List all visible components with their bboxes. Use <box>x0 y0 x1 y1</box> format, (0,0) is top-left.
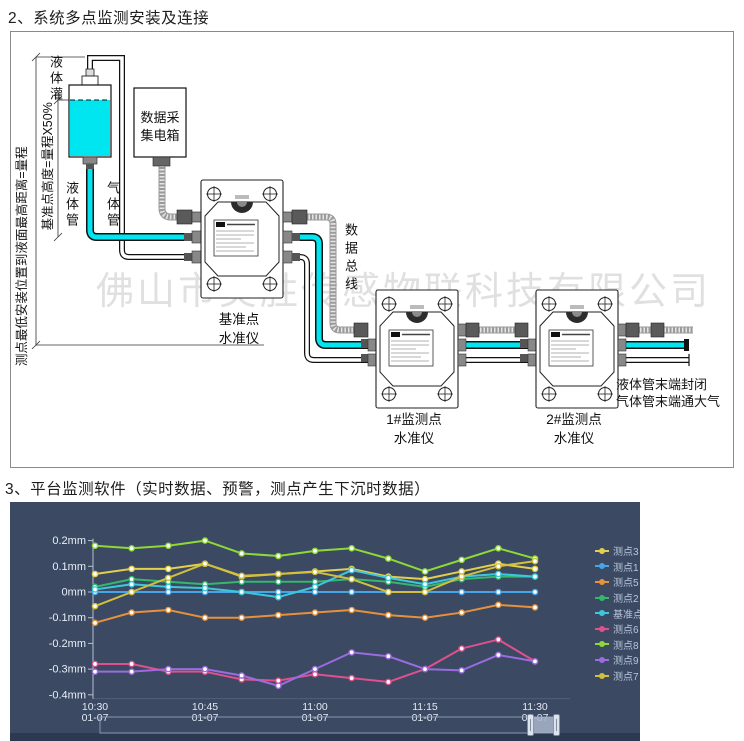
slider-selected-range[interactable] <box>530 717 556 733</box>
legend-label: 测点1 <box>613 559 639 574</box>
dim-base-height-label: 基准点高度=量程X50% <box>42 66 55 266</box>
legend-item-测点2[interactable]: 测点2 <box>595 590 640 606</box>
legend-item-测点9[interactable]: 测点9 <box>595 652 640 668</box>
data-point <box>312 569 317 574</box>
legend-label: 测点6 <box>613 621 639 636</box>
data-point <box>202 615 207 620</box>
legend-label: 测点9 <box>613 652 639 667</box>
section-title-install: 2、系统多点监测安装及连接 <box>8 6 209 28</box>
data-point <box>496 589 501 594</box>
legend-item-测点1[interactable]: 测点1 <box>595 559 640 575</box>
data-point <box>239 673 244 678</box>
y-tick-label: 0mm <box>62 587 86 599</box>
data-point <box>386 613 391 618</box>
series-测点1 <box>92 589 537 594</box>
y-tick-label: -0.1mm <box>49 612 86 624</box>
data-point <box>496 571 501 576</box>
data-point <box>349 675 354 680</box>
data-point <box>239 551 244 556</box>
data-point <box>459 646 464 651</box>
data-point <box>459 557 464 562</box>
data-point <box>459 589 464 594</box>
x-axis: 10:3001-0710:4501-0711:0001-0711:1501-07… <box>82 699 570 724</box>
data-point <box>202 538 207 543</box>
x-tick-date: 01-07 <box>302 712 329 724</box>
legend-label: 测点5 <box>613 574 639 589</box>
collector-box-label-1: 数据采 <box>140 110 179 125</box>
station2-label-1: 2#监测点 <box>546 412 602 427</box>
data-point <box>349 568 354 573</box>
legend-label: 测点7 <box>613 668 639 683</box>
legend-marker-icon <box>595 581 609 583</box>
data-point <box>386 575 391 580</box>
legend-marker-icon <box>595 550 609 552</box>
data-point <box>386 654 391 659</box>
data-point <box>532 589 537 594</box>
data-point <box>276 553 281 558</box>
data-point <box>496 546 501 551</box>
data-point <box>92 543 97 548</box>
data-point <box>129 577 134 582</box>
data-point <box>276 579 281 584</box>
liquid-tank <box>69 69 111 169</box>
data-point <box>239 615 244 620</box>
data-point <box>92 661 97 666</box>
data-point <box>496 637 501 642</box>
legend-marker-icon <box>595 675 609 677</box>
data-point <box>459 610 464 615</box>
series-测点5 <box>92 602 537 625</box>
y-tick-label: 0.2mm <box>52 535 86 547</box>
series-测点9 <box>92 650 537 689</box>
legend-marker-icon <box>595 597 609 599</box>
data-point <box>312 667 317 672</box>
legend-marker-icon <box>595 643 609 645</box>
dim-full-range-label: 测点最低安装位置到液面最高距离=量程 <box>16 76 29 436</box>
data-point <box>532 574 537 579</box>
legend-marker-icon <box>595 659 609 661</box>
data-point <box>422 667 427 672</box>
data-point <box>386 679 391 684</box>
installation-diagram-svg: 佛山市昊胜传感物联科技有限公司 <box>11 32 733 467</box>
data-point <box>276 613 281 618</box>
data-point <box>276 683 281 688</box>
data-point <box>349 546 354 551</box>
data-point <box>459 569 464 574</box>
data-point <box>92 620 97 625</box>
data-point <box>312 579 317 584</box>
chart-legend: 测点3测点1测点5测点2基准点4测点6测点8测点9测点7 <box>595 543 640 683</box>
data-point <box>422 589 427 594</box>
base-station-label-1: 基准点 <box>219 311 260 327</box>
legend-label: 测点3 <box>613 543 639 558</box>
series-测点6 <box>92 637 537 685</box>
data-point <box>129 669 134 674</box>
station1-label-1: 1#监测点 <box>386 412 442 427</box>
data-point <box>532 566 537 571</box>
data-point <box>92 571 97 576</box>
legend-item-基准点4[interactable]: 基准点4 <box>595 605 640 621</box>
data-point <box>386 589 391 594</box>
data-point <box>422 582 427 587</box>
data-point <box>276 595 281 600</box>
data-point <box>532 659 537 664</box>
data-point <box>166 667 171 672</box>
data-point <box>202 667 207 672</box>
x-tick-date: 01-07 <box>192 712 219 724</box>
data-point <box>276 678 281 683</box>
data-point <box>166 589 171 594</box>
data-point <box>532 605 537 610</box>
data-point <box>92 587 97 592</box>
legend-marker-icon <box>595 565 609 567</box>
data-point <box>422 569 427 574</box>
data-point <box>202 586 207 591</box>
legend-label: 基准点4 <box>613 606 640 621</box>
data-point <box>422 615 427 620</box>
data-point <box>129 582 134 587</box>
end-note-1: 液体管末端封闭 <box>616 377 707 392</box>
legend-marker-icon <box>595 628 609 630</box>
y-tick-label: -0.3mm <box>49 664 86 676</box>
base-station-label-2: 水准仪 <box>219 331 260 346</box>
gas-pipe-label: 气体管 <box>106 181 119 229</box>
monitor-chart: 0.2mm0.1mm0mm-0.1mm-0.2mm-0.3mm-0.4mm10:… <box>10 502 640 741</box>
y-tick-label: -0.2mm <box>49 638 86 650</box>
legend-label: 测点2 <box>613 590 639 605</box>
data-point <box>276 571 281 576</box>
data-point <box>496 652 501 657</box>
data-point <box>166 584 171 589</box>
data-point <box>312 610 317 615</box>
data-collector-box: 数据采 集电箱 <box>134 88 186 166</box>
data-point <box>312 548 317 553</box>
station2-label-2: 水准仪 <box>554 431 595 446</box>
y-tick-label: 0.1mm <box>52 561 86 573</box>
legend-item-测点8[interactable]: 测点8 <box>595 637 640 653</box>
legend-label: 测点8 <box>613 637 639 652</box>
legend-item-测点7[interactable]: 测点7 <box>595 668 640 684</box>
data-point <box>202 561 207 566</box>
legend-marker-icon <box>595 612 609 614</box>
station1-label-2: 水准仪 <box>394 431 435 446</box>
liquid-tube-end-cap <box>684 339 689 351</box>
data-point <box>92 604 97 609</box>
collector-box-label-2: 集电箱 <box>140 128 179 143</box>
data-point <box>422 577 427 582</box>
legend-item-测点3[interactable]: 测点3 <box>595 543 640 559</box>
data-point <box>459 668 464 673</box>
end-note-2: 气体管末端通大气 <box>616 394 720 409</box>
data-point <box>496 564 501 569</box>
software-panel: 0.2mm0.1mm0mm-0.1mm-0.2mm-0.3mm-0.4mm10:… <box>10 502 640 741</box>
data-point <box>239 579 244 584</box>
data-point <box>129 589 134 594</box>
data-point <box>276 589 281 594</box>
panel-footer-strip <box>10 733 640 741</box>
data-point <box>312 589 317 594</box>
y-tick-label: -0.4mm <box>49 689 86 701</box>
data-point <box>239 589 244 594</box>
data-point <box>312 672 317 677</box>
data-point <box>386 556 391 561</box>
data-point <box>349 577 354 582</box>
data-point <box>129 661 134 666</box>
data-point <box>312 584 317 589</box>
data-point <box>166 543 171 548</box>
data-zoom-slider[interactable] <box>100 715 560 736</box>
data-point <box>349 650 354 655</box>
data-point <box>129 566 134 571</box>
data-point <box>92 669 97 674</box>
section-title-software: 3、平台监测软件（实时数据、预警，测点产生下沉时数据） <box>5 477 430 499</box>
installation-diagram: 佛山市昊胜传感物联科技有限公司 <box>10 31 734 468</box>
data-point <box>532 559 537 564</box>
x-tick-date: 01-07 <box>82 712 109 724</box>
x-tick-date: 01-07 <box>412 712 439 724</box>
data-point <box>166 575 171 580</box>
legend-item-测点5[interactable]: 测点5 <box>595 574 640 590</box>
data-point <box>129 546 134 551</box>
data-bus-label: 数据总线 <box>344 223 357 295</box>
data-point <box>349 607 354 612</box>
liquid-pipe-label: 液体管 <box>65 181 78 229</box>
data-point <box>459 574 464 579</box>
data-point <box>166 607 171 612</box>
legend-item-测点6[interactable]: 测点6 <box>595 621 640 637</box>
y-axis: 0.2mm0.1mm0mm-0.1mm-0.2mm-0.3mm-0.4mm <box>49 535 93 701</box>
data-point <box>349 589 354 594</box>
data-point <box>129 610 134 615</box>
data-point <box>496 602 501 607</box>
data-point <box>239 573 244 578</box>
data-point <box>166 566 171 571</box>
